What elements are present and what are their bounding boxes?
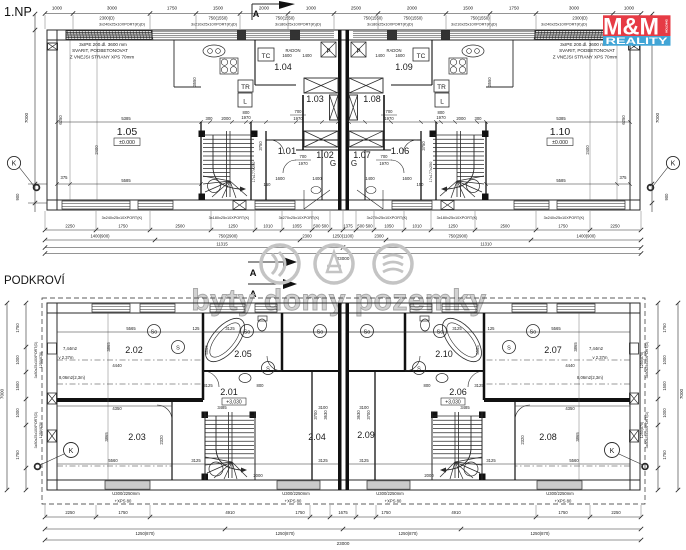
- svg-text:1750: 1750: [558, 510, 568, 515]
- svg-text:1970: 1970: [436, 115, 446, 120]
- svg-text:3xIPE 200.dl. 3600 mm: 3xIPE 200.dl. 3600 mm: [79, 42, 127, 47]
- svg-text:3100: 3100: [359, 405, 369, 410]
- svg-text:1600: 1600: [395, 53, 405, 58]
- svg-text:2400: 2400: [585, 145, 590, 155]
- svg-text:8,06m2(2,3m): 8,06m2(2,3m): [59, 375, 86, 380]
- svg-text:1600: 1600: [282, 53, 292, 58]
- svg-text:3x270x25x10XPORT(K): 3x270x25x10XPORT(K): [367, 216, 408, 220]
- svg-text:1000: 1000: [52, 6, 63, 11]
- svg-text:2.05: 2.05: [234, 349, 252, 359]
- svg-text:1250(870): 1250(870): [530, 531, 550, 536]
- svg-text:700: 700: [295, 109, 303, 114]
- svg-text:TC: TC: [262, 53, 271, 60]
- svg-text:23000: 23000: [337, 256, 350, 261]
- svg-text:±0.000: ±0.000: [119, 140, 135, 146]
- svg-text:1750: 1750: [662, 450, 667, 460]
- svg-text:1250: 1250: [448, 224, 458, 229]
- svg-text:5385: 5385: [556, 116, 566, 121]
- svg-text:1250(870): 1250(870): [640, 422, 644, 438]
- svg-text:3700: 3700: [366, 410, 371, 420]
- svg-text:3630: 3630: [356, 410, 361, 420]
- svg-text:L: L: [243, 99, 247, 106]
- svg-text:7000: 7000: [24, 112, 29, 123]
- svg-text:1750: 1750: [509, 6, 520, 11]
- svg-text:800: 800: [257, 383, 265, 388]
- svg-text:1500: 1500: [15, 381, 20, 391]
- svg-text:4910: 4910: [225, 510, 235, 515]
- svg-text:500 500: 500 500: [313, 224, 329, 229]
- svg-text:900: 900: [15, 193, 20, 201]
- svg-text:2300(D): 2300(D): [572, 16, 588, 21]
- svg-text:800: 800: [424, 383, 432, 388]
- svg-text:2.08: 2.08: [539, 432, 557, 442]
- svg-text:1600: 1600: [402, 176, 412, 181]
- svg-text:2400: 2400: [94, 145, 99, 155]
- svg-text:3xIPE 200.dl. 3600 mm: 3xIPE 200.dl. 3600 mm: [560, 42, 608, 47]
- svg-text:1.NP: 1.NP: [4, 5, 32, 19]
- svg-text:Z VNEJSI STRANY XPS 70mm: Z VNEJSI STRANY XPS 70mm: [553, 55, 618, 60]
- svg-text:3865: 3865: [575, 432, 580, 442]
- svg-text:750(1550): 750(1550): [403, 16, 423, 21]
- svg-text:1970: 1970: [384, 116, 394, 121]
- svg-text:375: 375: [61, 175, 69, 180]
- svg-text:P: P: [356, 49, 360, 55]
- svg-text:3750: 3750: [421, 141, 426, 151]
- svg-text:3x80x25x10XPORT(D): 3x80x25x10XPORT(D): [645, 342, 649, 379]
- svg-text:U300/2250mm: U300/2250mm: [112, 491, 140, 496]
- svg-text:900: 900: [664, 193, 669, 201]
- svg-text:3125: 3125: [225, 326, 235, 331]
- svg-text:1.04: 1.04: [274, 62, 292, 72]
- svg-text:3x240x25x10XPORT(K)(D): 3x240x25x10XPORT(K)(D): [541, 23, 588, 27]
- svg-text:TR: TR: [437, 84, 446, 91]
- svg-text:1.01: 1.01: [278, 146, 297, 157]
- svg-text:375: 375: [620, 175, 628, 180]
- svg-text:1750: 1750: [15, 450, 20, 460]
- svg-text:2300(D): 2300(D): [99, 16, 115, 21]
- svg-text:1010: 1010: [263, 224, 273, 229]
- svg-text:300: 300: [206, 116, 214, 121]
- svg-text:2000: 2000: [221, 116, 231, 121]
- svg-text:U300/2250mm: U300/2250mm: [376, 491, 404, 496]
- svg-text:1375: 1375: [343, 224, 353, 229]
- svg-text:3865: 3865: [104, 432, 109, 442]
- svg-text:4440: 4440: [112, 363, 122, 368]
- svg-text:6250: 6250: [621, 115, 626, 125]
- svg-text:3865: 3865: [573, 342, 578, 352]
- svg-text:2000: 2000: [407, 6, 418, 11]
- svg-text:700: 700: [381, 154, 389, 159]
- svg-text:1000: 1000: [662, 355, 667, 365]
- svg-text:1050: 1050: [384, 224, 394, 229]
- svg-text:L: L: [440, 99, 444, 106]
- svg-text:2.10: 2.10: [435, 349, 453, 359]
- svg-text:U300/2250mm: U300/2250mm: [282, 491, 310, 496]
- svg-text:1055: 1055: [292, 224, 302, 229]
- svg-text:1970: 1970: [293, 116, 303, 121]
- svg-text:1250(870): 1250(870): [39, 422, 43, 438]
- svg-text:4440: 4440: [565, 363, 575, 368]
- svg-text:1970: 1970: [241, 115, 251, 120]
- svg-text:2.09: 2.09: [357, 430, 375, 440]
- svg-text:TR: TR: [241, 84, 250, 91]
- svg-text:1.05: 1.05: [117, 126, 138, 138]
- svg-text:2.01: 2.01: [220, 387, 238, 397]
- svg-text:HOLDING: HOLDING: [665, 18, 669, 32]
- svg-text:3100: 3100: [318, 405, 328, 410]
- svg-text:1250: 1250: [228, 224, 238, 229]
- svg-text:PODKROVÍ: PODKROVÍ: [4, 274, 66, 287]
- svg-text:1000: 1000: [15, 408, 20, 418]
- svg-text:3x240x25x10XPORT(K): 3x240x25x10XPORT(K): [102, 216, 143, 220]
- svg-text:SVARIT, PODBETONOVAT: SVARIT, PODBETONOVAT: [72, 48, 128, 53]
- svg-text:17x177x250: 17x177x250: [252, 162, 256, 183]
- svg-text:3x270x25x10XPORT(K): 3x270x25x10XPORT(K): [279, 216, 320, 220]
- svg-text:1.10: 1.10: [550, 126, 571, 138]
- svg-text:1600: 1600: [275, 176, 285, 181]
- svg-text:2500: 2500: [351, 6, 362, 11]
- svg-text:1250(1100): 1250(1100): [332, 234, 354, 239]
- svg-text:6250: 6250: [58, 115, 63, 125]
- svg-text:7000: 7000: [0, 388, 5, 399]
- svg-text:3x80x25x10XPORT(D): 3x80x25x10XPORT(D): [34, 412, 38, 449]
- svg-text:7,44m2: 7,44m2: [63, 346, 78, 351]
- svg-text:1750: 1750: [662, 323, 667, 333]
- svg-text:3x180x25x10XPORT(K)(D): 3x180x25x10XPORT(K)(D): [367, 23, 414, 27]
- svg-text:5585: 5585: [556, 178, 566, 183]
- svg-text:1500: 1500: [213, 6, 224, 11]
- svg-text:1500: 1500: [463, 6, 474, 11]
- svg-text:2250: 2250: [65, 510, 75, 515]
- svg-text:REALITY: REALITY: [606, 36, 669, 47]
- svg-text:1.03: 1.03: [306, 94, 324, 104]
- svg-text:3125: 3125: [452, 326, 462, 331]
- svg-text:5560: 5560: [569, 458, 579, 463]
- svg-text:8,06m2(2,3m): 8,06m2(2,3m): [577, 375, 604, 380]
- svg-text:17x177x250: 17x177x250: [429, 162, 433, 183]
- svg-text:2000: 2000: [259, 6, 270, 11]
- svg-text:700: 700: [300, 154, 308, 159]
- svg-text:750(1550): 750(1550): [275, 16, 295, 21]
- svg-text:1750: 1750: [167, 6, 178, 11]
- svg-text:v 2,37m: v 2,37m: [59, 355, 74, 360]
- svg-text:So: So: [151, 330, 158, 336]
- svg-text:7000: 7000: [679, 388, 684, 399]
- svg-text:3000: 3000: [107, 6, 118, 11]
- svg-text:SVARIT, PODBETONOVAT: SVARIT, PODBETONOVAT: [559, 48, 615, 53]
- svg-text:125: 125: [193, 326, 201, 331]
- svg-text:5565: 5565: [204, 345, 209, 355]
- svg-text:2000: 2000: [424, 473, 434, 478]
- svg-text:1400: 1400: [365, 176, 375, 181]
- svg-text:1000: 1000: [306, 6, 317, 11]
- svg-text:150: 150: [264, 182, 272, 187]
- svg-text:+XPS 80: +XPS 80: [115, 499, 132, 504]
- svg-text:750(1550): 750(1550): [470, 16, 490, 21]
- svg-text:1750: 1750: [381, 510, 391, 515]
- svg-text:3x80x25x10XPORT(D): 3x80x25x10XPORT(D): [645, 412, 649, 449]
- svg-text:4910: 4910: [451, 510, 461, 515]
- svg-text:P: P: [326, 49, 330, 55]
- svg-text:±0.000: ±0.000: [552, 140, 568, 146]
- svg-text:2320: 2320: [520, 435, 525, 445]
- svg-text:11315: 11315: [216, 242, 228, 247]
- svg-text:So: So: [317, 330, 324, 336]
- svg-text:5585: 5585: [121, 178, 131, 183]
- svg-text:2000: 2000: [456, 116, 466, 121]
- svg-text:1.06: 1.06: [391, 146, 410, 157]
- svg-text:1675: 1675: [338, 510, 348, 515]
- svg-text:4350: 4350: [112, 406, 122, 411]
- svg-text:1250(870): 1250(870): [275, 531, 295, 536]
- svg-text:2250: 2250: [610, 224, 620, 229]
- svg-text:4350: 4350: [565, 406, 575, 411]
- svg-text:U300/2250mm: U300/2250mm: [546, 491, 574, 496]
- svg-text:1250(870): 1250(870): [39, 352, 43, 368]
- svg-text:2300: 2300: [374, 234, 384, 239]
- svg-text:1250(870): 1250(870): [135, 531, 155, 536]
- svg-text:So: So: [244, 330, 251, 336]
- svg-text:3000: 3000: [569, 6, 580, 11]
- svg-text:3x240x25x10XPORT(K): 3x240x25x10XPORT(K): [544, 216, 585, 220]
- svg-text:23000: 23000: [337, 541, 350, 545]
- svg-text:750(2900): 750(2900): [448, 234, 468, 239]
- svg-text:+XPS 80: +XPS 80: [385, 499, 402, 504]
- svg-text:750(2900): 750(2900): [218, 234, 238, 239]
- svg-text:1750: 1750: [15, 323, 20, 333]
- svg-text:1000: 1000: [15, 355, 20, 365]
- svg-text:1000: 1000: [662, 408, 667, 418]
- svg-text:S: S: [266, 367, 270, 373]
- svg-text:A: A: [253, 9, 260, 19]
- svg-text:1500: 1500: [662, 381, 667, 391]
- svg-text:+XPS 80: +XPS 80: [285, 499, 302, 504]
- svg-text:3x240x25x10XPORT(K)(D): 3x240x25x10XPORT(K)(D): [99, 23, 146, 27]
- svg-text:750(1550): 750(1550): [208, 16, 228, 21]
- svg-text:3x80x25x10XPORT(D): 3x80x25x10XPORT(D): [34, 342, 38, 379]
- svg-text:150: 150: [417, 182, 425, 187]
- svg-text:A: A: [250, 268, 257, 279]
- svg-text:2.07: 2.07: [544, 345, 562, 355]
- svg-text:1250(870): 1250(870): [398, 531, 418, 536]
- svg-text:So: So: [530, 330, 537, 336]
- svg-text:+3,030: +3,030: [226, 400, 242, 406]
- svg-text:700: 700: [386, 109, 394, 114]
- svg-text:3125: 3125: [359, 458, 369, 463]
- svg-text:G: G: [351, 159, 357, 168]
- svg-text:300: 300: [475, 116, 483, 121]
- svg-text:1750: 1750: [558, 224, 568, 229]
- svg-text:S: S: [507, 346, 511, 352]
- svg-text:2300: 2300: [302, 234, 312, 239]
- svg-text:125: 125: [488, 326, 496, 331]
- svg-text:5560: 5560: [108, 458, 118, 463]
- svg-text:2250: 2250: [611, 510, 621, 515]
- svg-text:1400: 1400: [302, 53, 312, 58]
- svg-text:3550: 3550: [192, 77, 197, 87]
- svg-text:1750: 1750: [295, 510, 305, 515]
- svg-text:7,44m2: 7,44m2: [589, 346, 604, 351]
- svg-text:3485: 3485: [217, 405, 227, 410]
- svg-text:1400: 1400: [312, 176, 322, 181]
- svg-text:3750: 3750: [258, 141, 263, 151]
- svg-text:500 500: 500 500: [357, 224, 373, 229]
- svg-text:2500: 2500: [175, 224, 185, 229]
- svg-text:3x210x25x10XPORT(K)(D): 3x210x25x10XPORT(K)(D): [451, 23, 498, 27]
- svg-text:1250(870): 1250(870): [640, 352, 644, 368]
- svg-text:3x210x25x10XPORT(K)(D): 3x210x25x10XPORT(K)(D): [191, 23, 238, 27]
- svg-text:2250: 2250: [65, 224, 75, 229]
- svg-text:3865: 3865: [106, 342, 111, 352]
- svg-text:S: S: [176, 346, 180, 352]
- svg-text:1750: 1750: [118, 510, 128, 515]
- svg-text:3x180x25x10XPORT(K): 3x180x25x10XPORT(K): [209, 216, 250, 220]
- svg-text:K: K: [671, 161, 676, 168]
- svg-text:3485: 3485: [460, 405, 470, 410]
- svg-text:750(1550): 750(1550): [363, 16, 383, 21]
- svg-text:3630: 3630: [323, 410, 328, 420]
- svg-text:So: So: [364, 330, 371, 336]
- svg-text:+3,030: +3,030: [445, 400, 461, 406]
- svg-text:1400: 1400: [375, 53, 385, 58]
- svg-text:2.04: 2.04: [308, 432, 326, 442]
- svg-text:2500: 2500: [500, 224, 510, 229]
- svg-text:K: K: [69, 448, 74, 455]
- svg-text:1000: 1000: [624, 6, 635, 11]
- svg-text:11310: 11310: [480, 242, 492, 247]
- svg-text:1400(900): 1400(900): [90, 234, 110, 239]
- svg-text:Z VNEJSI STRANY XPS 70mm: Z VNEJSI STRANY XPS 70mm: [70, 55, 135, 60]
- svg-text:S: S: [417, 367, 421, 373]
- svg-text:1750: 1750: [118, 224, 128, 229]
- svg-text:5565: 5565: [126, 326, 136, 331]
- svg-text:2000: 2000: [253, 473, 263, 478]
- svg-text:3125: 3125: [486, 458, 496, 463]
- svg-text:1010: 1010: [412, 224, 422, 229]
- svg-text:K: K: [610, 448, 615, 455]
- svg-text:1970: 1970: [379, 161, 389, 166]
- svg-text:2.03: 2.03: [128, 432, 146, 442]
- svg-text:TC: TC: [417, 53, 426, 60]
- svg-text:1.08: 1.08: [363, 94, 381, 104]
- svg-text:1.09: 1.09: [395, 62, 413, 72]
- svg-text:K: K: [12, 161, 17, 168]
- svg-text:1970: 1970: [298, 161, 308, 166]
- svg-text:3125: 3125: [191, 458, 201, 463]
- svg-text:1400(900): 1400(900): [576, 234, 596, 239]
- svg-text:v 2,37m: v 2,37m: [593, 355, 608, 360]
- svg-text:2320: 2320: [159, 435, 164, 445]
- svg-text:7000: 7000: [655, 112, 660, 123]
- svg-text:3550: 3550: [487, 77, 492, 87]
- svg-text:2.06: 2.06: [449, 387, 467, 397]
- svg-text:5565: 5565: [551, 326, 561, 331]
- svg-text:+XPS 80: +XPS 80: [555, 499, 572, 504]
- svg-text:3x180x25x10XPORT(K)(D): 3x180x25x10XPORT(K)(D): [275, 23, 322, 27]
- svg-text:3125: 3125: [474, 383, 484, 388]
- svg-text:So: So: [437, 330, 444, 336]
- svg-text:2.02: 2.02: [125, 345, 143, 355]
- svg-text:3700: 3700: [313, 410, 318, 420]
- svg-text:3x180x25x10XPORT(K): 3x180x25x10XPORT(K): [437, 216, 478, 220]
- svg-text:3125: 3125: [203, 383, 213, 388]
- svg-text:G: G: [330, 159, 336, 168]
- svg-text:5565: 5565: [475, 345, 480, 355]
- svg-text:3125: 3125: [318, 458, 328, 463]
- svg-text:5385: 5385: [121, 116, 131, 121]
